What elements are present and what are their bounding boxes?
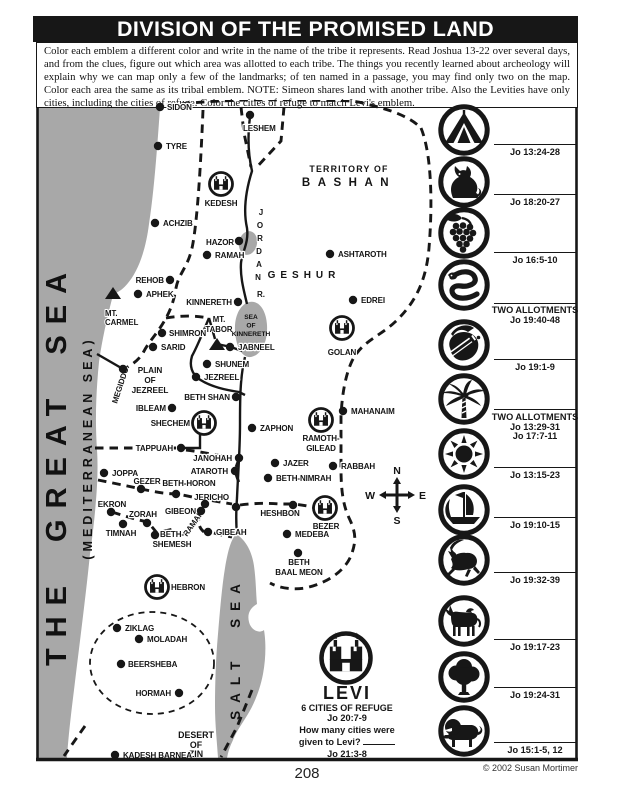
city-label: MEDEBA xyxy=(295,530,329,539)
title-bar: DIVISION OF THE PROMISED LAND xyxy=(33,16,578,42)
city-dot xyxy=(326,250,334,258)
refuge-city-emblem-icon xyxy=(146,576,169,599)
city-label: SARID xyxy=(161,343,186,352)
city-label: GEZER xyxy=(133,477,160,486)
city-label: RAMAH xyxy=(215,251,245,260)
city-label: RABBAH xyxy=(341,462,375,471)
city-label: HORMAH xyxy=(136,689,172,698)
scripture-reference: Jo 19:32-39 xyxy=(477,575,593,585)
city-dot xyxy=(135,635,143,643)
scripture-reference: Jo 19:1-9 xyxy=(477,362,593,372)
city-label: SHEMESH xyxy=(153,540,192,549)
city-label: ACHZIB xyxy=(163,219,193,228)
city-label: TIMNAH xyxy=(106,529,137,538)
sea-of-kinnereth-label: SEA xyxy=(244,314,258,321)
city-label: SHIMRON xyxy=(169,329,206,338)
scripture-reference: TWO ALLOTMENTS xyxy=(477,412,593,422)
city-dot xyxy=(175,689,183,697)
city-label: MAHANAIM xyxy=(351,407,395,416)
city-label: APHEK xyxy=(146,290,174,299)
worksheet-page: DIVISION OF THE PROMISED LAND Color each… xyxy=(0,0,618,800)
city-label: EDREI xyxy=(361,296,385,305)
grapes-icon xyxy=(437,206,491,260)
scripture-reference: Jo 13:15-23 xyxy=(477,470,593,480)
instructions-text: Color each emblem a different color and … xyxy=(36,42,578,108)
city-dot xyxy=(134,290,142,298)
city-label: HAZOR xyxy=(206,238,234,247)
city-dot xyxy=(149,343,157,351)
city-label: ASHTAROTH xyxy=(338,250,387,259)
city-label: KINNERETH xyxy=(186,298,232,307)
city-dot xyxy=(158,329,166,337)
compass-rose: NSWE xyxy=(365,465,426,527)
levi-refuge-caption: 6 CITIES OF REFUGE xyxy=(294,703,400,713)
great-sea-label: THE GREAT SEA xyxy=(41,262,73,666)
city-dot xyxy=(100,469,108,477)
city-label: BETH xyxy=(288,558,310,567)
city-label: SHUNEM xyxy=(215,360,250,369)
region-label: OF xyxy=(144,376,155,385)
city-label: ZIKLAG xyxy=(125,624,154,633)
city-label: ZAPHON xyxy=(260,424,294,433)
region-label: TERRITORY OF xyxy=(309,164,388,174)
city-label: ATAROTH xyxy=(191,467,229,476)
jordan-river-label: O xyxy=(257,221,263,230)
scripture-reference: Jo 13:24-28 xyxy=(477,147,593,157)
city-dot xyxy=(168,404,176,412)
city-label: SIDON xyxy=(167,103,192,112)
refuge-city-emblem-icon xyxy=(314,497,337,520)
tribe-name-blank-line xyxy=(494,572,577,573)
refuge-city-label: KEDESH xyxy=(205,199,238,208)
tribe-name-blank-line xyxy=(494,467,577,468)
city-dot xyxy=(192,373,200,381)
city-label: JANOHAH xyxy=(193,454,232,463)
jordan-river-label: R xyxy=(257,234,263,243)
tribe-name-blank-line xyxy=(494,409,577,410)
refuge-city-emblem-icon xyxy=(331,317,354,340)
region-label: MT. xyxy=(105,309,118,318)
city-label: BAAL MEON xyxy=(275,568,323,577)
region-label: GESHUR xyxy=(268,270,341,281)
city-label: BETH SHAN xyxy=(184,393,230,402)
region-label: BASHAN xyxy=(302,177,396,189)
region-label: TABOR xyxy=(205,325,233,334)
refuge-city-label: HEBRON xyxy=(171,583,205,592)
refuge-city-label: SHECHEM xyxy=(151,419,191,428)
levi-ref-2: Jo 21:3-8 xyxy=(294,749,400,759)
donkey-icon xyxy=(437,594,491,648)
city-dot xyxy=(246,111,254,119)
city-dot xyxy=(226,343,234,351)
city-label: EKRON xyxy=(98,500,127,509)
city-label: BETH-NIMRAH xyxy=(276,474,332,483)
region-label: DESERT xyxy=(178,730,214,740)
city-label: HESHBON xyxy=(260,509,300,518)
tribe-name-blank-line xyxy=(494,687,577,688)
scripture-reference: Jo 19:24-31 xyxy=(477,690,593,700)
refuge-city-label: GOLAN xyxy=(328,348,357,357)
sea-of-kinnereth-label: KINNERETH xyxy=(232,331,271,338)
refuge-city-label: BEZER xyxy=(313,522,340,531)
map-dashed-boundary xyxy=(255,107,284,169)
sea-of-kinnereth-label: OF xyxy=(246,323,255,330)
refuge-city-emblem-icon xyxy=(210,173,233,196)
region-label: JEZREEL xyxy=(132,386,169,395)
region-label: MT. xyxy=(213,315,226,324)
jordan-river-label: R. xyxy=(257,290,265,299)
refuge-city-label: RAMOTH- xyxy=(302,434,340,443)
city-dot xyxy=(203,251,211,259)
scripture-reference: Jo 18:20-27 xyxy=(477,197,593,207)
city-dot xyxy=(329,462,337,470)
compass-south-label: S xyxy=(393,515,400,527)
city-label: IBLEAM xyxy=(136,404,167,413)
city-label: JERICHO xyxy=(194,493,229,502)
city-dot xyxy=(235,454,243,462)
copyright-notice: © 2002 Susan Mortimer xyxy=(483,763,578,773)
city-label: BETH- xyxy=(160,530,184,539)
scripture-reference: Jo 16:5-10 xyxy=(477,255,593,265)
city-dot xyxy=(232,393,240,401)
city-dot xyxy=(283,530,291,538)
region-label: CARMEL xyxy=(105,318,139,327)
map-solid-boundary xyxy=(241,117,252,304)
city-label: TAPPUAH xyxy=(136,444,174,453)
region-label: PLAIN xyxy=(138,366,163,375)
map-dashed-boundary xyxy=(167,100,421,128)
scripture-reference: Jo 19:10-15 xyxy=(477,520,593,530)
city-dot xyxy=(264,474,272,482)
city-dot xyxy=(151,219,159,227)
page-title: DIVISION OF THE PROMISED LAND xyxy=(117,17,494,42)
tribe-name-blank-line xyxy=(494,252,577,253)
city-dot xyxy=(232,503,240,511)
jordan-river-label: J xyxy=(259,208,263,217)
scripture-reference: Jo 19:17-23 xyxy=(477,642,593,652)
snake-icon xyxy=(437,258,491,312)
refuge-city-emblem-icon xyxy=(310,409,333,432)
levi-label: LEVI xyxy=(294,683,400,704)
city-dot xyxy=(119,365,127,373)
scripture-reference: TWO ALLOTMENTS xyxy=(477,305,593,315)
tribe-name-blank-line xyxy=(494,144,577,145)
city-label: BETH-HORON xyxy=(162,479,216,488)
city-dot xyxy=(231,467,239,475)
city-dot xyxy=(143,519,151,527)
city-dot xyxy=(235,237,243,245)
city-label: GIBEON xyxy=(165,507,196,516)
jordan-river-label: A xyxy=(256,260,262,269)
compass-north-label: N xyxy=(393,465,401,477)
city-label: JEZREEL xyxy=(204,373,240,382)
city-dot xyxy=(294,549,302,557)
answer-blank-line xyxy=(363,736,395,745)
city-dot xyxy=(234,298,242,306)
city-dot xyxy=(204,528,212,536)
city-dot xyxy=(172,490,180,498)
city-label: JABNEEL xyxy=(238,343,275,352)
refuge-city-emblem-icon xyxy=(193,412,216,435)
city-dot xyxy=(113,624,121,632)
scripture-reference: Jo 17:7-11 xyxy=(477,431,593,441)
map-dashed-boundary xyxy=(166,316,208,318)
levi-ref-1: Jo 20:7-9 xyxy=(294,713,400,723)
tribe-name-blank-line xyxy=(494,517,577,518)
city-dot xyxy=(119,520,127,528)
city-dot xyxy=(156,103,164,111)
city-label: ZORAH xyxy=(129,510,157,519)
levi-question-line-2: given to Levi? xyxy=(294,736,400,747)
city-dot xyxy=(151,531,159,539)
city-dot xyxy=(339,407,347,415)
refuge-city-label: GILEAD xyxy=(306,444,336,453)
scripture-reference: Jo 15:1-5, 12 xyxy=(477,745,593,755)
tribe-name-blank-line xyxy=(494,303,577,304)
city-label: LESHEM xyxy=(243,124,276,133)
tribe-name-blank-line xyxy=(494,359,577,360)
city-dot xyxy=(137,485,145,493)
city-dot xyxy=(177,444,185,452)
levi-refuge-emblem-icon xyxy=(317,629,375,687)
city-dot xyxy=(203,360,211,368)
city-label: GIBEAH xyxy=(216,528,247,537)
city-label: JAZER xyxy=(283,459,309,468)
city-dot xyxy=(349,296,357,304)
city-dot xyxy=(166,276,174,284)
city-dot xyxy=(107,508,115,516)
city-dot xyxy=(289,501,297,509)
salt-sea-label: SALT SEA xyxy=(228,576,243,720)
jordan-river-label: D xyxy=(256,247,262,256)
compass-west-label: W xyxy=(365,490,375,502)
tribe-name-blank-line xyxy=(494,639,577,640)
tribe-name-blank-line xyxy=(494,194,577,195)
city-dot xyxy=(117,660,125,668)
compass-east-label: E xyxy=(419,490,426,502)
map-solid-boundary xyxy=(97,354,123,369)
mediterranean-sea-label: (MEDITERRANEAN SEA) xyxy=(81,336,95,559)
tribe-name-blank-line xyxy=(494,742,577,743)
city-dot xyxy=(248,424,256,432)
city-label: TYRE xyxy=(166,142,188,151)
city-label: BEERSHEBA xyxy=(128,660,178,669)
jordan-river-label: N xyxy=(255,273,261,282)
city-dot xyxy=(271,459,279,467)
city-label: REHOB xyxy=(136,276,165,285)
scripture-reference: Jo 19:40-48 xyxy=(477,315,593,325)
map-dashed-boundary xyxy=(270,128,431,589)
city-dot xyxy=(201,500,209,508)
city-dot xyxy=(154,142,162,150)
levi-question-line-1: How many cities were xyxy=(294,725,400,735)
city-label: MOLADAH xyxy=(147,635,188,644)
